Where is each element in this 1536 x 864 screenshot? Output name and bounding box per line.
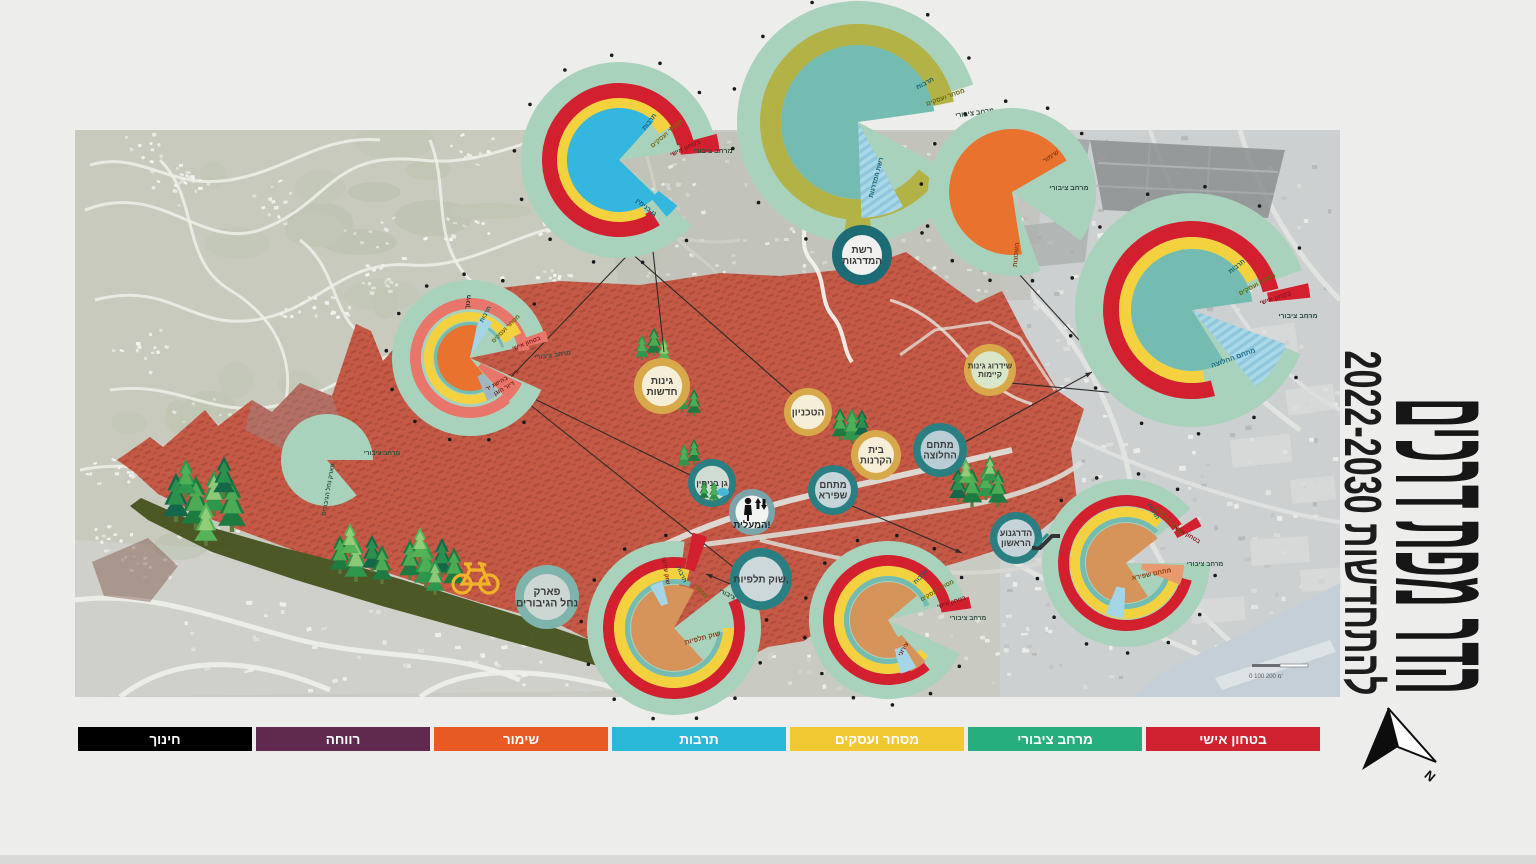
svg-text:חדשות: חדשות — [646, 387, 677, 398]
svg-text:הטכניון: הטכניון — [792, 408, 825, 419]
svg-text:מרחב ציבורי: מרחב ציבורי — [693, 148, 732, 155]
svg-text:מרחב ציבורי: מרחב ציבורי — [364, 450, 401, 457]
svg-text:רשת: רשת — [852, 245, 873, 256]
svg-text:הדרגנוע: הדרגנוע — [1000, 528, 1033, 538]
svg-text:שוק תלפיות,: שוק תלפיות, — [733, 574, 789, 586]
svg-text:0 100 200 מ': 0 100 200 מ' — [1249, 674, 1283, 680]
svg-text:מסחר ועסקים: מסחר ועסקים — [835, 732, 919, 747]
svg-text:הקרנות: הקרנות — [860, 456, 892, 467]
svg-text:בית: בית — [868, 445, 884, 456]
svg-text:שימור: שימור — [503, 732, 539, 747]
svg-text:שפירא: שפירא — [819, 491, 848, 502]
svg-text:החלוצה: החלוצה — [923, 451, 957, 462]
svg-text:המדרגות: המדרגות — [842, 256, 882, 267]
svg-text:תרבות: תרבות — [679, 732, 718, 747]
svg-text:מרחב ציבורי: מרחב ציבורי — [1017, 732, 1093, 747]
svg-text:נחל הגיבורים: נחל הגיבורים — [516, 597, 578, 609]
svg-text:רווחה: רווחה — [326, 732, 361, 747]
svg-text:מרחב ציבורי: מרחב ציבורי — [1187, 561, 1224, 568]
svg-text:קיימות: קיימות — [978, 370, 1002, 379]
svg-text:חינוך: חינוך — [149, 732, 180, 747]
svg-text:מרחב ציבורי: מרחב ציבורי — [950, 615, 987, 622]
svg-text:המעלית!: המעלית! — [733, 520, 770, 531]
svg-text:פארק: פארק — [534, 586, 561, 598]
svg-text:שידרוג גינות: שידרוג גינות — [968, 361, 1013, 370]
svg-text:מתחם: מתחם — [926, 440, 953, 451]
svg-text:מתחם: מתחם — [819, 480, 846, 491]
svg-text:מרחב ציבורי: מרחב ציבורי — [1278, 313, 1317, 320]
svg-text:מרחב ציבורי: מרחב ציבורי — [1049, 185, 1088, 192]
svg-text:בטחון אישי: בטחון אישי — [1199, 732, 1267, 747]
svg-text:להתחדשות 2022-2030: להתחדשות 2022-2030 — [1333, 351, 1391, 696]
svg-text:גינות: גינות — [651, 376, 674, 387]
svg-text:הראשון: הראשון — [1001, 538, 1031, 548]
